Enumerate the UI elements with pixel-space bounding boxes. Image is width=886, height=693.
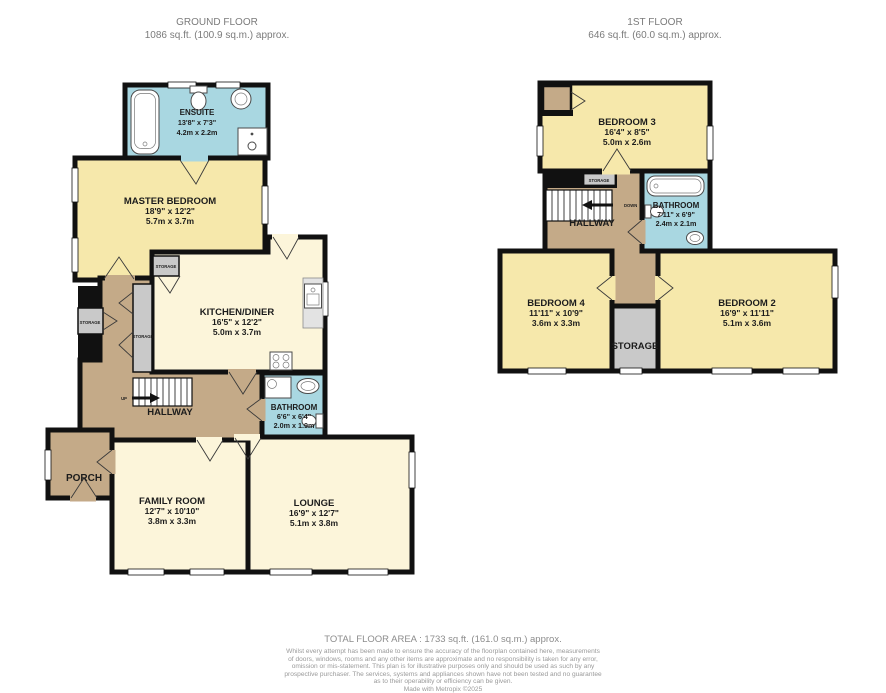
label-family-imperial: 12'7" x 10'10": [145, 506, 200, 516]
ff-stairs: [546, 190, 613, 221]
label-bathroom-1f-name: BATHROOM: [653, 201, 700, 210]
room-storage-1f: [612, 306, 658, 371]
label-up: UP: [121, 396, 127, 401]
label-bathroom-gf-name: BATHROOM: [271, 403, 318, 412]
disclaimer-line: of doors, windows, rooms and any other i…: [0, 656, 886, 664]
basin-icon: [687, 232, 704, 245]
label-storage-column: STORAGE: [133, 334, 154, 339]
wall-block: [541, 110, 573, 116]
label-bedroom4-imperial: 11'11" x 10'9": [529, 308, 583, 318]
label-bedroom3-metric: 5.0m x 2.6m: [603, 137, 652, 147]
label-bathroom-1f-metric: 2.4m x 2.1m: [656, 219, 697, 228]
room-porch: [48, 430, 112, 498]
label-bathroom-gf-metric: 2.0m x 1.9m: [274, 421, 315, 430]
made-with-credit: Made with Metropix ©2025: [0, 686, 886, 693]
wall-block: [78, 286, 102, 308]
ground-floor-plan: ENSUITE 13'8" x 7'3" 4.2m x 2.2m MASTER …: [38, 76, 422, 580]
label-master-imperial: 18'9" x 12'2": [145, 206, 195, 216]
storage-closet: [133, 284, 152, 372]
disclaimer: Whilst every attempt has been made to en…: [0, 648, 886, 693]
label-bathroom-1f-imperial: 7'11" x 6'9": [657, 210, 695, 219]
label-master-metric: 5.7m x 3.7m: [146, 216, 195, 226]
disclaimer-line: as to their operability or efficiency ca…: [0, 678, 886, 686]
label-lounge-metric: 5.1m x 3.8m: [290, 518, 339, 528]
ground-floor-title: GROUND FLOOR: [67, 16, 367, 29]
label-hallway-1f: HALLWAY: [569, 218, 615, 229]
basin-icon: [297, 379, 319, 394]
shower-icon: [238, 128, 267, 155]
stove-icon: [270, 352, 292, 370]
disclaimer-line: Whilst every attempt has been made to en…: [0, 648, 886, 656]
label-hallway-gf: HALLWAY: [147, 407, 193, 418]
label-lounge-imperial: 16'9" x 12'7": [289, 508, 339, 518]
first-floor-area: 646 sq.ft. (60.0 sq.m.) approx.: [505, 29, 805, 42]
shower-drain: [248, 142, 256, 150]
first-floor-header: 1ST FLOOR 646 sq.ft. (60.0 sq.m.) approx…: [505, 16, 805, 42]
label-storage-1f: STORAGE: [612, 341, 659, 352]
wall-block: [78, 334, 102, 360]
floorplan-page: GROUND FLOOR 1086 sq.ft. (100.9 sq.m.) a…: [0, 0, 886, 693]
total-floor-area: TOTAL FLOOR AREA : 1733 sq.ft. (161.0 sq…: [0, 634, 886, 646]
label-ensuite-imperial: 13'8" x 7'3": [178, 118, 216, 127]
label-bedroom2-imperial: 16'9" x 11'11": [720, 308, 774, 318]
label-storage-kitchen: STORAGE: [156, 264, 177, 269]
label-kitchen-imperial: 16'5" x 12'2": [212, 317, 262, 327]
label-porch: PORCH: [66, 473, 102, 484]
basin-icon: [231, 89, 251, 109]
label-storage-left: STORAGE: [80, 320, 101, 325]
shower-head: [251, 133, 254, 136]
label-bathroom-gf-imperial: 6'6" x 6'4": [277, 412, 311, 421]
gf-stairs: [132, 378, 192, 406]
landing-recess: [543, 86, 571, 112]
ground-floor-area: 1086 sq.ft. (100.9 sq.m.) approx.: [67, 29, 367, 42]
footer: TOTAL FLOOR AREA : 1733 sq.ft. (161.0 sq…: [0, 634, 886, 693]
ground-floor-header: GROUND FLOOR 1086 sq.ft. (100.9 sq.m.) a…: [67, 16, 367, 42]
first-floor-title: 1ST FLOOR: [505, 16, 805, 29]
label-ensuite-metric: 4.2m x 2.2m: [177, 128, 218, 137]
label-kitchen-metric: 5.0m x 3.7m: [213, 327, 262, 337]
label-family-metric: 3.8m x 3.3m: [148, 516, 197, 526]
disclaimer-line: prospective purchaser. The services, sys…: [0, 671, 886, 679]
label-bedroom2-metric: 5.1m x 3.6m: [723, 318, 772, 328]
label-down: DOWN: [624, 203, 637, 208]
label-bedroom4-metric: 3.6m x 3.3m: [532, 318, 581, 328]
disclaimer-line: omission or mis-statement. This plan is …: [0, 663, 886, 671]
toilet-cistern-icon: [316, 414, 323, 428]
label-bedroom3-imperial: 16'4" x 8'5": [604, 127, 649, 137]
first-floor-plan: BEDROOM 3 16'4" x 8'5" 5.0m x 2.6m BATHR…: [494, 76, 844, 382]
label-ensuite-name: ENSUITE: [180, 108, 215, 117]
label-storage-small: STORAGE: [589, 178, 610, 183]
